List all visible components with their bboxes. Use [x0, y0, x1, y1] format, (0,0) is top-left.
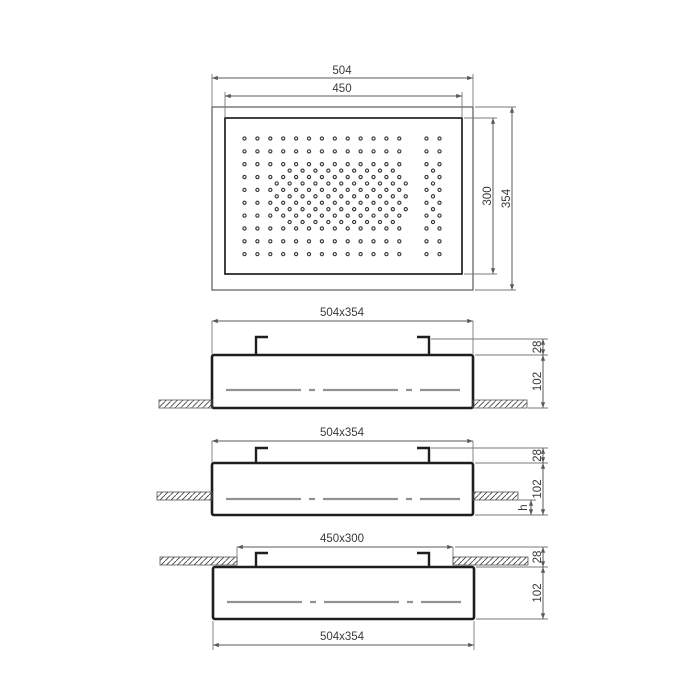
nozzle: [391, 220, 394, 223]
nozzle: [359, 201, 362, 204]
nozzle: [385, 227, 388, 230]
nozzle: [301, 220, 304, 223]
nozzle: [295, 163, 298, 166]
nozzle: [438, 150, 441, 153]
nozzle: [256, 253, 259, 256]
dim-label-v1-bracket: 28: [532, 341, 544, 354]
nozzle: [314, 182, 317, 185]
mounting-bracket-left: [256, 337, 268, 356]
nozzle: [340, 169, 343, 172]
nozzle: [438, 175, 441, 178]
mounting-bracket-right: [417, 337, 429, 356]
nozzle: [295, 150, 298, 153]
shower-head-technical-drawing: 504 450 300 354 504x354 28 102 504x354 2…: [0, 0, 700, 700]
top-view-geometry: [212, 74, 516, 290]
nozzle: [398, 240, 401, 243]
dimension-arrow: [467, 439, 473, 443]
nozzle: [346, 240, 349, 243]
nozzle: [282, 137, 285, 140]
nozzle: [425, 240, 428, 243]
shower-body-outline: [212, 355, 473, 408]
nozzle: [320, 214, 323, 217]
section-view-semi-recessed: 504x354 28 102 h: [157, 427, 548, 515]
nozzle: [288, 220, 291, 223]
nozzle: [269, 253, 272, 256]
nozzle: [314, 195, 317, 198]
nozzle: [431, 195, 434, 198]
nozzle: [243, 201, 246, 204]
nozzle: [243, 227, 246, 230]
nozzle: [391, 208, 394, 211]
dimension-arrow: [212, 439, 218, 443]
dimension-arrow: [213, 643, 219, 647]
dim-label-outer-width: 504: [332, 65, 352, 77]
shower-body-outline: [213, 567, 474, 619]
dim-label-inner-width: 450: [332, 83, 351, 95]
nozzle: [256, 175, 259, 178]
nozzle: [353, 220, 356, 223]
semi-recessed-geometry: [157, 439, 548, 515]
nozzle: [438, 201, 441, 204]
dimension-arrow: [212, 319, 218, 323]
nozzle: [243, 150, 246, 153]
nozzle: [398, 253, 401, 256]
dimension-arrow: [510, 284, 514, 290]
nozzle: [327, 182, 330, 185]
dim-label-v2-top: 504x354: [320, 427, 365, 439]
nozzle: [378, 182, 381, 185]
nozzle: [320, 163, 323, 166]
nozzle: [385, 150, 388, 153]
nozzle: [372, 240, 375, 243]
nozzle: [256, 227, 259, 230]
nozzle: [314, 208, 317, 211]
dimension-arrow: [237, 545, 243, 549]
nozzle: [333, 240, 336, 243]
dimension-arrow: [467, 319, 473, 323]
nozzle: [425, 188, 428, 191]
nozzle: [269, 240, 272, 243]
mounting-bracket-left: [256, 448, 268, 464]
dim-label-v3-bottom: 504x354: [320, 631, 365, 643]
nozzle: [425, 214, 428, 217]
dimension-arrow: [541, 613, 545, 619]
nozzle: [378, 195, 381, 198]
nozzle: [295, 227, 298, 230]
nozzle: [346, 214, 349, 217]
nozzle: [438, 137, 441, 140]
dim-label-v2-body: 102: [532, 479, 544, 498]
nozzle: [307, 214, 310, 217]
nozzle: [301, 195, 304, 198]
nozzle: [372, 137, 375, 140]
nozzle: [243, 253, 246, 256]
dim-label-v3-bracket: 28: [532, 551, 544, 564]
dimension-arrow: [467, 76, 473, 80]
nozzle: [385, 240, 388, 243]
nozzle: [391, 195, 394, 198]
nozzle: [365, 182, 368, 185]
nozzle: [425, 201, 428, 204]
nozzle: [425, 175, 428, 178]
ceiling-hatch: [453, 557, 528, 565]
nozzle: [320, 201, 323, 204]
nozzle: [404, 208, 407, 211]
nozzle: [431, 169, 434, 172]
dim-label-outer-height: 354: [501, 188, 513, 208]
nozzle: [320, 253, 323, 256]
dimension-arrow: [447, 545, 453, 549]
nozzle: [391, 182, 394, 185]
nozzle: [365, 220, 368, 223]
nozzle: [385, 214, 388, 217]
nozzle: [372, 188, 375, 191]
nozzle: [346, 227, 349, 230]
nozzle: [398, 201, 401, 204]
recessed-geometry: [159, 319, 548, 408]
nozzle: [295, 240, 298, 243]
nozzle: [359, 227, 362, 230]
nozzle: [256, 150, 259, 153]
nozzle: [269, 188, 272, 191]
nozzle: [269, 137, 272, 140]
nozzle: [314, 220, 317, 223]
nozzle: [327, 220, 330, 223]
nozzle: [398, 163, 401, 166]
nozzle: [359, 150, 362, 153]
nozzle: [327, 195, 330, 198]
nozzle: [243, 214, 246, 217]
nozzle: [359, 240, 362, 243]
ceiling-hatch: [160, 557, 237, 565]
nozzle: [385, 163, 388, 166]
nozzle: [275, 208, 278, 211]
nozzle: [333, 150, 336, 153]
nozzle: [404, 195, 407, 198]
nozzle: [327, 169, 330, 172]
nozzle: [288, 195, 291, 198]
nozzle: [425, 227, 428, 230]
nozzle: [398, 150, 401, 153]
nozzle: [431, 208, 434, 211]
nozzle: [256, 188, 259, 191]
nozzle: [333, 214, 336, 217]
dim-label-v1-top: 504x354: [320, 307, 365, 319]
nozzle: [295, 201, 298, 204]
nozzle: [340, 182, 343, 185]
nozzle: [398, 137, 401, 140]
nozzle: [320, 240, 323, 243]
nozzle: [295, 137, 298, 140]
nozzle: [243, 240, 246, 243]
nozzle: [372, 214, 375, 217]
section-view-surface: 450x300 28 102 504x354: [160, 533, 548, 650]
nozzle: [346, 175, 349, 178]
nozzle: [333, 175, 336, 178]
nozzle: [269, 201, 272, 204]
nozzle: [346, 163, 349, 166]
nozzle: [295, 188, 298, 191]
nozzle: [359, 163, 362, 166]
nozzle: [288, 182, 291, 185]
spray-face: [225, 118, 462, 274]
nozzle: [340, 195, 343, 198]
nozzle: [275, 195, 278, 198]
nozzle: [385, 201, 388, 204]
nozzle: [307, 163, 310, 166]
nozzle: [282, 227, 285, 230]
nozzle: [365, 169, 368, 172]
nozzle: [333, 188, 336, 191]
nozzle: [307, 227, 310, 230]
nozzle: [438, 227, 441, 230]
nozzle: [359, 137, 362, 140]
nozzle: [295, 175, 298, 178]
dimension-arrow: [541, 463, 545, 469]
nozzle: [391, 169, 394, 172]
nozzle: [307, 201, 310, 204]
nozzle: [243, 188, 246, 191]
ceiling-hatch: [157, 492, 212, 500]
nozzle: [359, 214, 362, 217]
dimension-arrow: [541, 509, 545, 515]
nozzle: [256, 240, 259, 243]
nozzle: [333, 163, 336, 166]
dimension-arrow: [468, 643, 474, 647]
nozzle: [340, 220, 343, 223]
nozzle: [269, 150, 272, 153]
nozzle: [288, 169, 291, 172]
nozzle: [431, 220, 434, 223]
nozzle: [353, 169, 356, 172]
nozzle: [282, 253, 285, 256]
nozzle: [425, 137, 428, 140]
nozzle: [333, 201, 336, 204]
nozzle: [288, 208, 291, 211]
nozzle: [307, 175, 310, 178]
dimension-arrow: [456, 94, 462, 98]
nozzle: [320, 175, 323, 178]
nozzle: [256, 137, 259, 140]
nozzle: [256, 214, 259, 217]
nozzle: [438, 240, 441, 243]
nozzle: [372, 201, 375, 204]
nozzle: [243, 175, 246, 178]
nozzle: [243, 163, 246, 166]
nozzle: [282, 201, 285, 204]
outer-frame: [212, 107, 473, 290]
dim-label-v2-bracket: 28: [532, 449, 544, 462]
dimension-arrow: [541, 567, 545, 573]
nozzle: [320, 188, 323, 191]
nozzle: [359, 175, 362, 178]
nozzle: [372, 253, 375, 256]
nozzle: [314, 169, 317, 172]
nozzle: [438, 253, 441, 256]
dimension-arrow: [541, 402, 545, 408]
nozzle: [282, 175, 285, 178]
nozzle: [378, 220, 381, 223]
nozzle: [301, 208, 304, 211]
nozzle: [333, 253, 336, 256]
nozzle: [282, 214, 285, 217]
nozzle: [385, 188, 388, 191]
nozzle: [269, 214, 272, 217]
dimension-arrow: [541, 355, 545, 361]
dim-label-v1-body: 102: [532, 372, 544, 391]
mounting-bracket-right: [417, 448, 429, 464]
nozzle: [359, 188, 362, 191]
nozzle: [398, 227, 401, 230]
nozzle: [269, 175, 272, 178]
nozzle: [425, 150, 428, 153]
nozzle: [353, 195, 356, 198]
nozzle: [320, 227, 323, 230]
nozzle: [282, 240, 285, 243]
nozzle: [404, 182, 407, 185]
drawing-canvas: 504 450 300 354 504x354 28 102 504x354 2…: [0, 0, 700, 700]
dim-label-v2-protrusion: h: [518, 504, 530, 510]
nozzle: [359, 253, 362, 256]
nozzle: [320, 150, 323, 153]
dimension-arrow: [212, 76, 218, 80]
dimension-arrow: [491, 118, 495, 124]
top-view: 504 450 300 354: [212, 65, 516, 290]
nozzle: [282, 188, 285, 191]
nozzle: [327, 208, 330, 211]
nozzle: [378, 169, 381, 172]
nozzle: [425, 163, 428, 166]
ceiling-hatch: [159, 400, 212, 408]
dim-label-v3-cutout: 450x300: [320, 533, 364, 545]
dimension-arrow: [491, 268, 495, 274]
dim-label-inner-height: 300: [482, 186, 494, 205]
nozzle: [425, 253, 428, 256]
nozzle: [353, 208, 356, 211]
nozzle: [438, 163, 441, 166]
nozzle: [365, 208, 368, 211]
nozzle: [346, 188, 349, 191]
nozzle: [372, 163, 375, 166]
nozzle: [333, 137, 336, 140]
nozzle: [307, 137, 310, 140]
nozzle: [243, 137, 246, 140]
nozzle: [372, 227, 375, 230]
nozzle: [307, 188, 310, 191]
nozzle: [269, 227, 272, 230]
nozzle: [385, 137, 388, 140]
shower-body-outline: [212, 463, 473, 515]
nozzle: [398, 214, 401, 217]
nozzle-grid: [243, 137, 441, 256]
ceiling-hatch: [473, 400, 527, 408]
nozzle: [333, 227, 336, 230]
nozzle: [438, 214, 441, 217]
nozzle: [431, 182, 434, 185]
nozzle: [372, 175, 375, 178]
nozzle: [346, 201, 349, 204]
nozzle: [301, 182, 304, 185]
nozzle: [346, 137, 349, 140]
nozzle: [256, 201, 259, 204]
nozzle: [438, 188, 441, 191]
nozzle: [307, 240, 310, 243]
dim-label-v3-body: 102: [532, 583, 544, 602]
nozzle: [365, 195, 368, 198]
nozzle: [269, 163, 272, 166]
nozzle: [295, 253, 298, 256]
nozzle: [282, 150, 285, 153]
nozzle: [385, 253, 388, 256]
nozzle: [275, 182, 278, 185]
nozzle: [282, 163, 285, 166]
nozzle: [307, 150, 310, 153]
nozzle: [340, 208, 343, 211]
nozzle: [346, 150, 349, 153]
dimension-arrow: [225, 94, 231, 98]
nozzle: [398, 175, 401, 178]
ceiling-hatch: [473, 492, 518, 500]
nozzle: [256, 163, 259, 166]
nozzle: [320, 137, 323, 140]
dimension-arrow: [510, 107, 514, 113]
nozzle: [398, 188, 401, 191]
nozzle: [301, 169, 304, 172]
nozzle: [378, 208, 381, 211]
nozzle: [295, 214, 298, 217]
nozzle: [307, 253, 310, 256]
section-view-recessed: 504x354 28 102: [159, 307, 548, 408]
nozzle: [353, 182, 356, 185]
nozzle: [346, 253, 349, 256]
nozzle: [372, 150, 375, 153]
nozzle: [385, 175, 388, 178]
